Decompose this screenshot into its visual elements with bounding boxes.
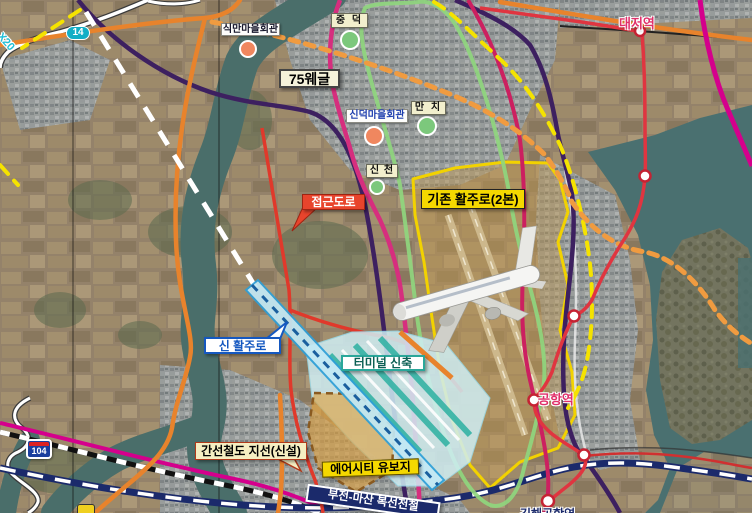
marker-sincheon	[370, 180, 384, 194]
marker-manchi	[418, 117, 436, 135]
route-shield-partial	[77, 504, 95, 513]
route-104-shield: 104	[26, 439, 52, 459]
label-access-road: 접근도로	[302, 194, 365, 210]
label-existing-runway: 기존 활주로(2본)	[421, 189, 525, 209]
route-14-shield: 14	[66, 26, 90, 40]
label-route-75: 75웨글	[279, 69, 340, 88]
label-aircity-reserve: 에어시티 유보지	[322, 458, 419, 477]
label-manchi: 만 치	[411, 101, 446, 115]
label-sincheon: 신 천	[366, 164, 398, 178]
label-gimhae-airport-station: 김해공항역	[520, 505, 575, 513]
label-trunk-rail-branch: 간선철도 지선(신설)	[195, 442, 307, 460]
satellite-map-canvas	[0, 0, 752, 513]
label-sindeok-hall: 신덕마을회관	[346, 109, 408, 123]
marker-sindeok	[365, 127, 383, 145]
label-gonghang-station: 공항역	[538, 389, 574, 408]
marker-sikman	[240, 41, 256, 57]
label-new-runway: 신 활주로	[204, 337, 281, 354]
airport-plan-map: 식만마을회관 중 덕 75웨글 신덕마을회관 만 치 신 천 기존 활주로(2본…	[0, 0, 752, 513]
label-sikman-hall: 식만마을회관	[221, 23, 280, 36]
label-daejeo-station: 대저역	[619, 13, 655, 32]
label-terminal-new: 터미널 신축	[341, 355, 425, 371]
label-jungdeok: 중 덕	[331, 13, 368, 28]
marker-jungdeok	[341, 31, 359, 49]
